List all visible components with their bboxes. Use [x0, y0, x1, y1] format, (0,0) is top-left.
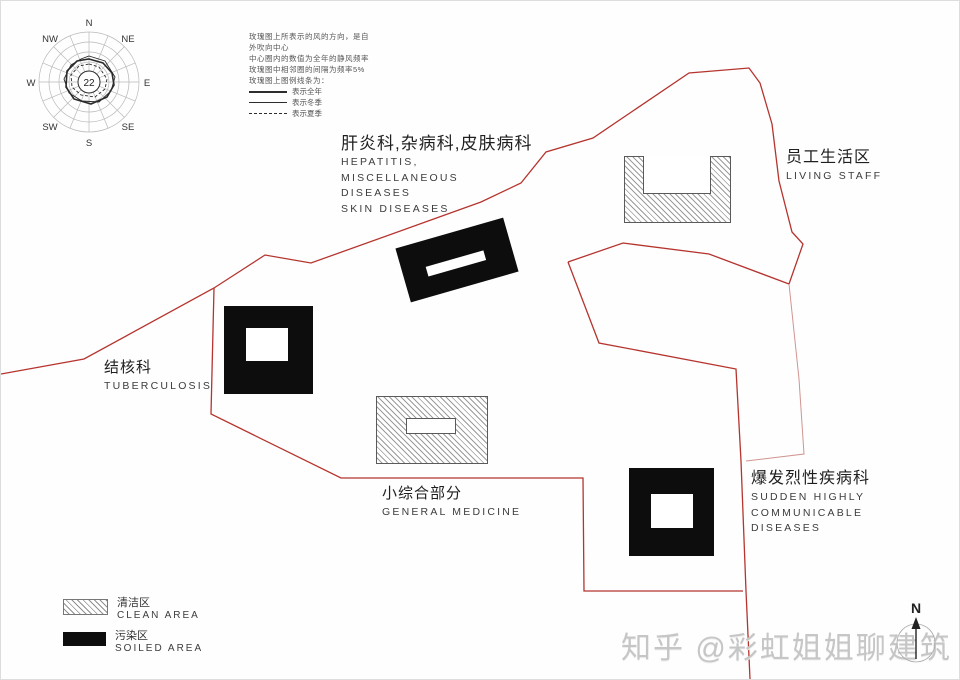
label-hepatitis-en: MISCELLANEOUS — [341, 172, 532, 186]
rose-key-label: 表示冬季 — [292, 97, 322, 108]
compass-se: SE — [122, 122, 135, 133]
label-outbreak-en: COMMUNICABLE — [751, 507, 870, 521]
label-tuberculosis-en: TUBERCULOSIS — [104, 380, 212, 394]
label-general-medicine-zh: 小综合部分 — [382, 484, 521, 504]
building-tuberculosis — [224, 306, 313, 394]
north-arrow: N — [886, 581, 956, 677]
label-general-medicine-en: GENERAL MEDICINE — [382, 506, 521, 520]
building-living-staff — [624, 156, 731, 223]
compass-w: W — [27, 78, 36, 89]
label-living-staff-en: LIVING STAFF — [786, 170, 882, 184]
wind-rose: 22 N NE E SE S SW W NW — [19, 9, 169, 157]
legend-clean-area: 清洁区 CLEAN AREA — [63, 597, 203, 622]
dashed-line-icon — [249, 113, 287, 114]
label-general-medicine: 小综合部分 GENERAL MEDICINE — [382, 484, 521, 520]
label-living-staff: 员工生活区 LIVING STAFF — [786, 148, 882, 184]
label-hepatitis-zh: 肝炎科,杂病科,皮肤病科 — [341, 134, 532, 154]
rose-desc-line: 玫瑰图上所表示的风的方向，是自 — [249, 31, 399, 42]
wind-rose-calm-value: 22 — [83, 78, 95, 89]
building-general-medicine — [376, 396, 488, 464]
rose-key-year: 表示全年 — [249, 86, 399, 97]
rose-desc-line: 外吹向中心 — [249, 42, 399, 53]
solid-thick-line-icon — [249, 91, 287, 93]
label-outbreak-zh: 爆发烈性疾病科 — [751, 469, 870, 489]
compass-e: E — [144, 78, 150, 89]
compass-sw: SW — [42, 122, 57, 133]
boundary-east-light — [746, 284, 804, 461]
compass-n: N — [86, 18, 93, 29]
label-living-staff-zh: 员工生活区 — [786, 148, 882, 168]
north-arrow-head-icon — [912, 617, 921, 629]
legend-soiled-area: 污染区 SOILED AREA — [63, 630, 203, 655]
wind-rose-description: 玫瑰图上所表示的风的方向，是自 外吹向中心 中心圈内的数值为全年的静风频率 玫瑰… — [249, 31, 399, 119]
compass-nw: NW — [42, 34, 58, 45]
label-tuberculosis: 结核科 TUBERCULOSIS — [104, 358, 212, 394]
compass-s: S — [86, 138, 92, 149]
label-hepatitis-en: DISEASES — [341, 187, 532, 201]
plan-legend: 清洁区 CLEAN AREA 污染区 SOILED AREA — [63, 597, 203, 663]
rose-desc-line: 玫瑰图中相邻圈的间隔为频率5% — [249, 64, 399, 75]
clean-area-swatch-icon — [63, 599, 108, 615]
label-outbreak-en: SUDDEN HIGHLY — [751, 491, 870, 505]
building-hepatitis-courtyard — [426, 250, 486, 276]
label-outbreak: 爆发烈性疾病科 SUDDEN HIGHLY COMMUNICABLE DISEA… — [751, 469, 870, 536]
rose-key-label: 表示夏季 — [292, 108, 322, 119]
legend-soiled-en: SOILED AREA — [115, 643, 203, 655]
building-living-staff-notch — [643, 156, 711, 194]
building-tuberculosis-courtyard — [246, 328, 288, 361]
label-hepatitis-en: HEPATITIS, — [341, 156, 532, 170]
rose-key-label: 表示全年 — [292, 86, 322, 97]
rose-key-summer: 表示夏季 — [249, 108, 399, 119]
site-plan-page: 22 N NE E SE S SW W NW 玫瑰图上所表示的风的方向，是自 外… — [0, 0, 960, 680]
building-general-medicine-courtyard — [406, 418, 456, 434]
soiled-area-swatch-icon — [63, 632, 106, 646]
rose-key-winter: 表示冬季 — [249, 97, 399, 108]
rose-desc-line: 玫瑰图上图例线条为： — [249, 75, 399, 86]
legend-soiled-zh: 污染区 — [115, 630, 203, 642]
label-outbreak-en: DISEASES — [751, 522, 870, 536]
compass-ne: NE — [121, 34, 134, 45]
legend-clean-zh: 清洁区 — [117, 597, 200, 609]
label-hepatitis-en: SKIN DISEASES — [341, 203, 532, 217]
legend-clean-en: CLEAN AREA — [117, 610, 200, 622]
boundary-neck — [568, 243, 789, 284]
building-outbreak-courtyard — [651, 494, 693, 528]
label-tuberculosis-zh: 结核科 — [104, 358, 212, 378]
solid-thin-line-icon — [249, 102, 287, 103]
rose-desc-line: 中心圈内的数值为全年的静风频率 — [249, 53, 399, 64]
label-hepatitis: 肝炎科,杂病科,皮肤病科 HEPATITIS, MISCELLANEOUS DI… — [341, 134, 532, 216]
north-arrow-label: N — [911, 600, 921, 616]
building-outbreak — [629, 468, 714, 556]
